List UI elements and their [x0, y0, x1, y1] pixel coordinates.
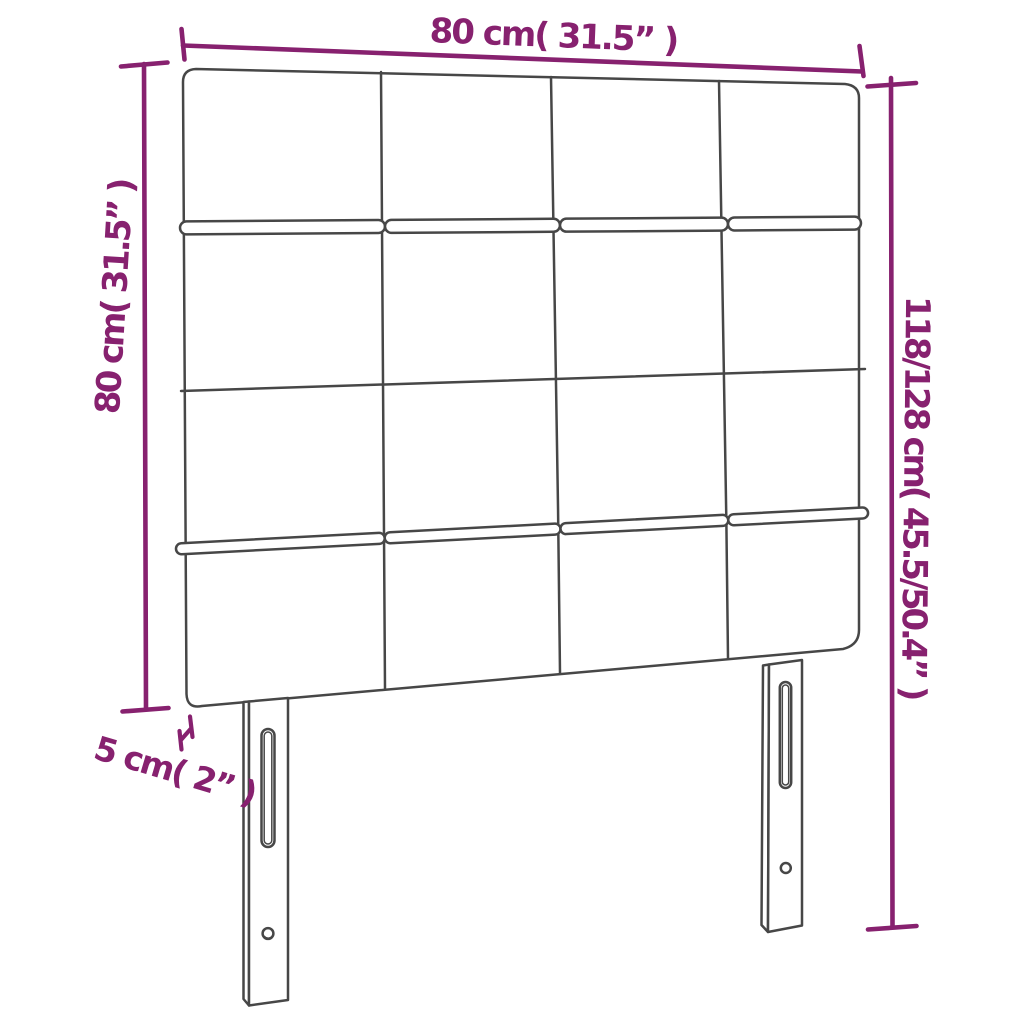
dimension-tick-left-top: [121, 63, 168, 67]
dimension-thickness: 5 cm( 2” ): [90, 717, 260, 813]
dimension-line-right: [891, 78, 893, 926]
dimension-tick-left-bottom: [123, 708, 169, 712]
dimension-label-thickness: 5 cm( 2” ): [90, 728, 260, 813]
thickness-bracket-icon: [180, 717, 193, 750]
dimension-line-left: [144, 64, 146, 709]
seam-segment: [728, 217, 861, 231]
dimension-right-height: 118/128 cm( 45.5/50.4” ): [868, 78, 938, 930]
right-leg: [762, 660, 803, 932]
dimension-label-right-height: 118/128 cm( 45.5/50.4” ): [893, 296, 937, 699]
seam-segment: [180, 220, 385, 234]
headboard-drawing: [176, 69, 869, 1006]
dimension-top-width: 80 cm( 31.5” ): [182, 11, 864, 76]
dimension-tick-top-left: [182, 29, 185, 60]
right-leg-slot-hole: [780, 682, 791, 788]
seam-segment: [560, 218, 728, 232]
dimension-tick-right-top: [868, 83, 917, 87]
right-leg-round-hole: [781, 863, 791, 873]
dimension-left-height: 80 cm( 31.5” ): [88, 63, 169, 712]
seam-segment: [385, 219, 560, 233]
dimension-tick-right-bottom: [868, 926, 917, 930]
left-leg: [244, 698, 289, 1006]
diagram-stage: 80 cm( 31.5” ) 80 cm( 31.5” ) 118/128 cm…: [0, 0, 1024, 1024]
diagram-canvas: 80 cm( 31.5” ) 80 cm( 31.5” ) 118/128 cm…: [0, 0, 1024, 1024]
dimension-label-left-height: 80 cm( 31.5” ): [88, 179, 142, 415]
dimension-label-top-width: 80 cm( 31.5” ): [429, 11, 678, 61]
